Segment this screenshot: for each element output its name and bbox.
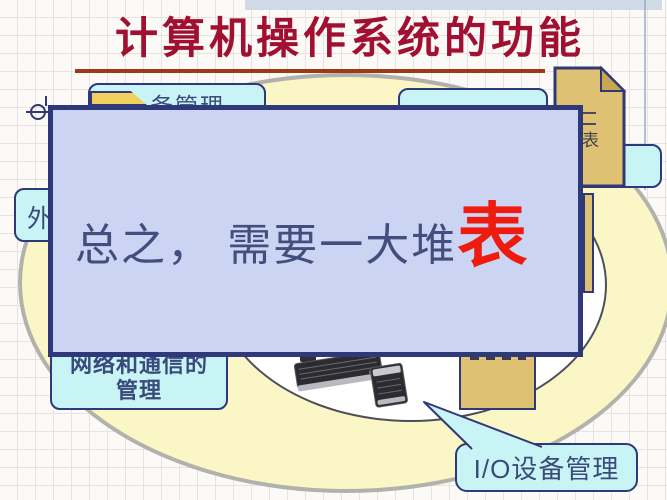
document-edge-strip: [583, 193, 594, 293]
network-label-line2: 管理: [50, 378, 228, 404]
page-title: 计算机操作系统的功能: [70, 16, 630, 63]
io-callout-label: I/O设备管理: [474, 449, 620, 486]
paper-top-strip: [245, 0, 662, 10]
title-underline: [75, 69, 545, 73]
slide: 计算机操作系统的功能 务管理 外 表: [0, 0, 667, 500]
box-network-management-label: 网络和通信的 管理: [50, 352, 228, 404]
document-bottom: [459, 355, 536, 410]
overlay-message-box: 总之， 需要一大堆表: [48, 105, 583, 357]
io-callout-bubble: I/O设备管理: [455, 443, 638, 492]
overlay-message: 总之， 需要一大堆表: [75, 180, 527, 281]
document-partial-text-mark: [583, 112, 596, 125]
document-label: 表: [582, 126, 599, 151]
overlay-message-emphasis: 表: [457, 197, 527, 275]
overlay-message-normal: 总之， 需要一大堆: [75, 221, 457, 270]
